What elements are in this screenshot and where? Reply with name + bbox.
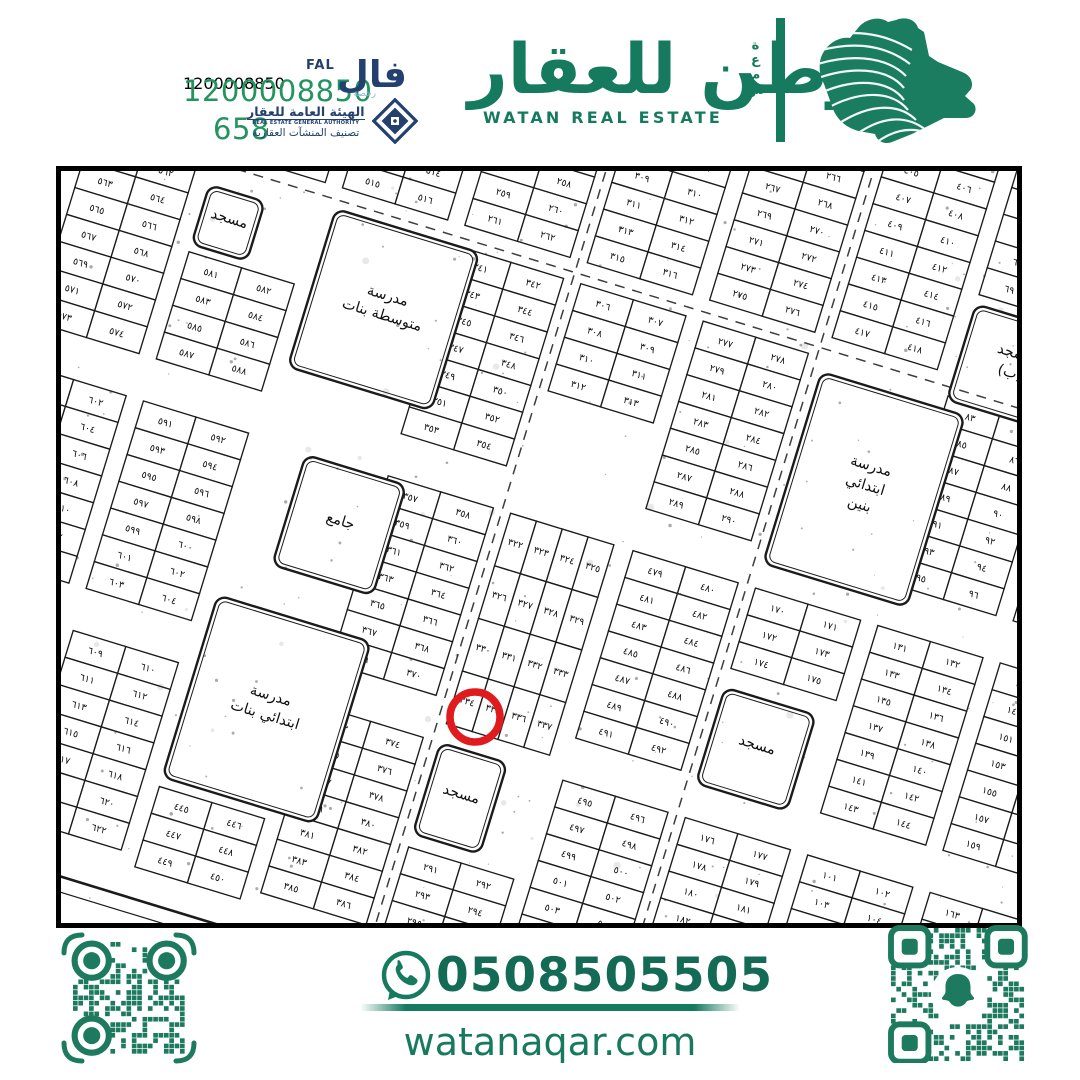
parcel [273, 171, 334, 183]
brand-logo: وطن للعقار WATAN REAL ESTATE [468, 36, 738, 127]
rega-diamond-icon [372, 98, 418, 144]
parcel [1013, 594, 1017, 637]
fal-logo: FAL فال رخصة [306, 58, 376, 99]
cadastral-map-frame: ٥٢١٥٢٢٥٢٣٥٢٤٥٢٥٥٢٦٥٢٧٥٢٨٥٢٩٥٣٠٥٣١٥٣٢٥٣٣٥… [56, 166, 1022, 928]
rega-classification-ar: تصنيف المنشآت العقارية [247, 127, 365, 139]
flyer-canvas: 1200008850 1200008850 FAL فال رخصة 658 ا… [0, 0, 1080, 1080]
brand-name-arabic: وطن للعقار [468, 36, 738, 105]
whatsapp-icon [378, 948, 434, 1004]
map-rotated-grid: ٥٢١٥٢٢٥٢٣٥٢٤٥٢٥٥٢٦٥٢٧٥٢٨٥٢٩٥٣٠٥٣١٥٣٢٥٣٣٥… [61, 171, 1017, 923]
phone-number: 0508505505 [436, 948, 773, 1003]
fal-logo-arabic: فال [337, 58, 407, 91]
brand-name-latin: WATAN REAL ESTATE [468, 108, 738, 127]
fal-logo-latin: FAL [306, 58, 335, 73]
rega-name-ar: الهيئة العامة للعقار [247, 104, 365, 119]
cadastral-map: ٥٢١٥٢٢٥٢٣٥٢٤٥٢٥٥٢٦٥٢٧٥٢٨٥٢٩٥٣٠٥٣١٥٣٢٥٣٣٥… [61, 171, 1017, 923]
qr-code-snapchat [888, 925, 1030, 1063]
qr-code-left [60, 931, 198, 1065]
saudi-map-logo [792, 10, 1012, 152]
rega-name-en: REAL ESTATE GENERAL AUTHORITY [247, 119, 365, 126]
rega-authority-logo: الهيئة العامة للعقار REAL ESTATE GENERAL… [247, 98, 418, 144]
website-url: watanaqar.com [360, 1020, 740, 1064]
footer-divider [360, 1004, 740, 1011]
brand-divider-bar [776, 18, 785, 142]
brand-vertical-word: شمعة [748, 38, 763, 148]
